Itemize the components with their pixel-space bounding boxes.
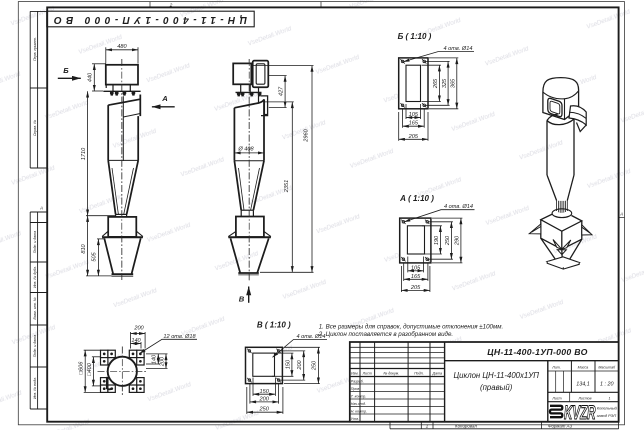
svg-text:Т. контр.: Т. контр. <box>351 395 367 399</box>
svg-text:ЦН-11-400-1УП-000 ВО: ЦН-11-400-1УП-000 ВО <box>487 347 587 357</box>
svg-text:365: 365 <box>451 78 457 88</box>
svg-text:140: 140 <box>152 354 158 364</box>
svg-text:Пров.: Пров. <box>351 387 360 391</box>
svg-text:Б ( 1:10 ): Б ( 1:10 ) <box>398 32 432 41</box>
svg-text:№ докум.: № докум. <box>383 372 399 376</box>
svg-text:Инв. № подл.: Инв. № подл. <box>33 377 37 399</box>
svg-text:505: 505 <box>92 251 98 261</box>
svg-text:200: 200 <box>159 356 165 367</box>
svg-text:1: 1 <box>609 396 611 400</box>
svg-text:Н. контр.: Н. контр. <box>351 410 367 414</box>
svg-text:Лист: Лист <box>551 396 561 400</box>
svg-text:А: А <box>161 94 167 103</box>
svg-text:□606: □606 <box>79 361 85 375</box>
svg-text:А: А <box>619 212 623 217</box>
svg-text:□400: □400 <box>87 362 93 376</box>
svg-text:Нач.отд.: Нач.отд. <box>351 402 366 406</box>
svg-text:205: 205 <box>410 285 421 291</box>
svg-text:200: 200 <box>259 397 270 403</box>
svg-text:427: 427 <box>278 86 284 96</box>
svg-text:325: 325 <box>442 78 448 88</box>
svg-text:205: 205 <box>408 134 419 140</box>
svg-text:2960: 2960 <box>304 128 310 142</box>
svg-text:(правый): (правый) <box>480 383 513 392</box>
svg-text:440: 440 <box>87 72 93 82</box>
svg-text:250: 250 <box>312 360 318 371</box>
svg-text:1. Все размеры для справок, до: 1. Все размеры для справок, допустимые о… <box>319 324 504 331</box>
svg-text:190: 190 <box>434 235 440 245</box>
svg-text:105: 105 <box>411 266 421 272</box>
svg-text:Изм.: Изм. <box>351 372 359 376</box>
svg-text:KVZR: KVZR <box>564 402 596 424</box>
svg-text:Утв.: Утв. <box>351 417 359 421</box>
svg-text:480: 480 <box>117 44 127 50</box>
svg-text:Дата: Дата <box>432 372 442 376</box>
svg-text:140: 140 <box>131 338 141 344</box>
svg-text:Б: Б <box>63 66 69 75</box>
svg-text:265: 265 <box>433 78 439 89</box>
svg-text:В: В <box>239 295 245 304</box>
svg-text:Лист: Лист <box>362 372 372 376</box>
svg-text:Справ. №: Справ. № <box>33 120 37 136</box>
svg-text:165: 165 <box>411 274 421 280</box>
svg-text:Ø 408: Ø 408 <box>237 147 254 153</box>
svg-text:1710: 1710 <box>81 147 87 160</box>
svg-text:В ( 1:10 ): В ( 1:10 ) <box>257 321 291 330</box>
svg-text:200: 200 <box>133 326 144 332</box>
svg-text:Циклон ЦН-11-400х1УП: Циклон ЦН-11-400х1УП <box>454 371 540 380</box>
svg-text:150: 150 <box>285 359 291 369</box>
svg-text:Подп. и дата: Подп. и дата <box>33 231 37 254</box>
svg-text:12 отв. Ø18: 12 отв. Ø18 <box>163 334 196 340</box>
svg-text:Инв. № дубл.: Инв. № дубл. <box>33 266 37 288</box>
svg-text:134,1: 134,1 <box>576 382 590 388</box>
svg-text:Разраб.: Разраб. <box>351 380 364 384</box>
svg-text:250: 250 <box>445 235 451 246</box>
svg-text:810: 810 <box>81 243 87 253</box>
svg-text:Взам. инв. №: Взам. инв. № <box>33 297 37 319</box>
svg-text:2. Циклон поставляется в разоб: 2. Циклон поставляется в разобранном вид… <box>318 331 453 338</box>
svg-text:Масса: Масса <box>578 365 589 369</box>
svg-text:Лит.: Лит. <box>551 365 560 369</box>
svg-text:1 : 20: 1 : 20 <box>600 382 614 388</box>
svg-text:Формат А3: Формат А3 <box>548 424 573 429</box>
svg-text:Подп.: Подп. <box>414 372 424 376</box>
svg-text:Копировал: Копировал <box>455 424 477 429</box>
svg-text:А ( 1:10 ): А ( 1:10 ) <box>399 194 434 203</box>
svg-text:250: 250 <box>259 407 270 413</box>
svg-text:2351: 2351 <box>284 180 290 193</box>
svg-text:Листов: Листов <box>577 396 591 400</box>
svg-text:4 отв. Ø14: 4 отв. Ø14 <box>443 46 472 52</box>
svg-text:Перв. примен.: Перв. примен. <box>33 37 37 61</box>
svg-text:165: 165 <box>409 121 419 127</box>
svg-text:Масштаб: Масштаб <box>598 365 616 369</box>
svg-text:Подп. и дата: Подп. и дата <box>33 335 37 358</box>
svg-text:Копельный: Копельный <box>597 406 618 411</box>
svg-text:150: 150 <box>260 389 270 395</box>
svg-text:завод РЭП: завод РЭП <box>596 413 617 418</box>
svg-text:290: 290 <box>455 235 461 246</box>
svg-text:200: 200 <box>297 359 303 370</box>
svg-text:2: 2 <box>169 2 173 7</box>
svg-text:105: 105 <box>409 112 419 118</box>
svg-text:А: А <box>39 206 43 211</box>
svg-text:4 отв. Ø14: 4 отв. Ø14 <box>444 204 473 210</box>
